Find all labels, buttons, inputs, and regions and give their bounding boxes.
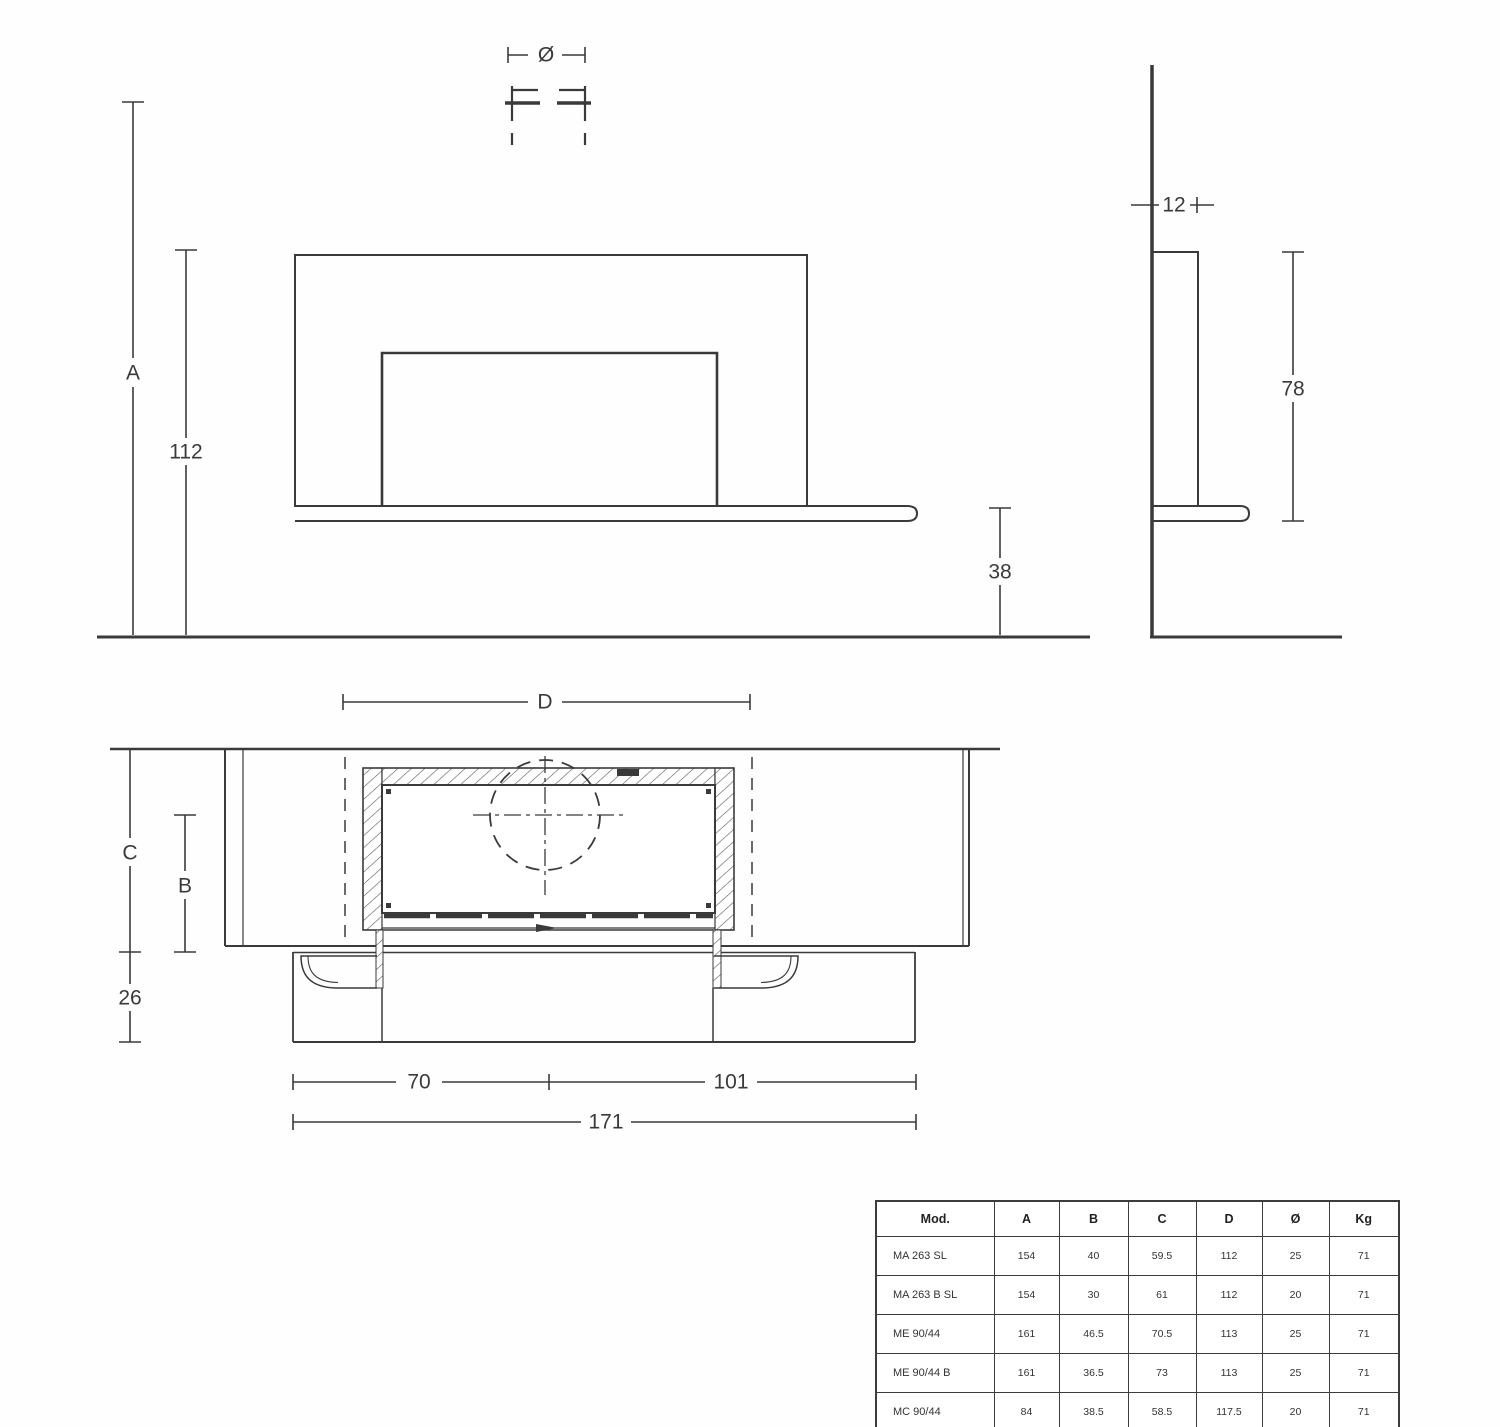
value-cell: 46.5 [1059,1315,1128,1354]
value-cell: 161 [994,1315,1059,1354]
table-row: MA 263 B SL15430611122071 [876,1276,1399,1315]
value-cell: 20 [1262,1276,1329,1315]
value-cell: 112 [1196,1276,1262,1315]
value-cell: 20 [1262,1393,1329,1427]
value-cell: 112 [1196,1237,1262,1276]
value-cell: 113 [1196,1315,1262,1354]
spec-table: Mod. A B C D Ø Kg MA 263 SL1544059.51122… [875,1200,1398,1427]
dim-label-101: 101 [713,1071,748,1094]
value-cell: 70.5 [1128,1315,1196,1354]
dim-c: C [115,749,145,952]
dim-label-112: 112 [169,441,202,464]
bench-slab-front [295,506,917,521]
col-header-c: C [1128,1201,1196,1237]
hood-front-outline [295,255,807,506]
model-cell: MC 90/44 [876,1393,994,1427]
dim-171: 171 [293,1109,916,1135]
side-view: 12 78 [1131,65,1342,637]
value-cell: 113 [1196,1354,1262,1393]
value-cell: 71 [1329,1315,1399,1354]
dim-label-78: 78 [1281,378,1304,401]
value-cell: 71 [1329,1354,1399,1393]
dim-38: 38 [982,508,1018,635]
value-cell: 71 [1329,1393,1399,1427]
plan-view: D [110,689,1000,1135]
dim-d: D [343,689,750,715]
firebox-front-outline [382,353,717,506]
firebox-plan [363,768,734,988]
value-cell: 117.5 [1196,1393,1262,1427]
value-cell: 58.5 [1128,1393,1196,1427]
table-row: MA 263 SL1544059.51122571 [876,1237,1399,1276]
value-cell: 36.5 [1059,1354,1128,1393]
dim-70-101: 70 101 [293,1069,916,1095]
col-header-d: D [1196,1201,1262,1237]
dim-label-12: 12 [1162,194,1185,217]
value-cell: 25 [1262,1237,1329,1276]
table-header-row: Mod. A B C D Ø Kg [876,1201,1399,1237]
value-cell: 84 [994,1393,1059,1427]
value-cell: 61 [1128,1276,1196,1315]
dim-label-26: 26 [118,987,141,1010]
dim-label-38: 38 [988,561,1011,584]
dim-b: B [170,815,200,952]
dim-12: 12 [1131,192,1214,218]
model-cell: ME 90/44 [876,1315,994,1354]
value-cell: 161 [994,1354,1059,1393]
value-cell: 154 [994,1237,1059,1276]
table-row: ME 90/4416146.570.51132571 [876,1315,1399,1354]
dim-label-b: B [178,875,192,898]
firebox-inner-outline [382,785,715,913]
hood-side-profile [1152,252,1198,506]
col-header-b: B [1059,1201,1128,1237]
value-cell: 71 [1329,1237,1399,1276]
technical-drawing-page: Ø A 112 38 [0,0,1500,1427]
col-header-mod: Mod. [876,1201,994,1237]
model-cell: ME 90/44 B [876,1354,994,1393]
dim-112: 112 [163,250,209,635]
dim-label-c: C [122,842,137,865]
model-cell: MA 263 SL [876,1237,994,1276]
value-cell: 30 [1059,1276,1128,1315]
value-cell: 25 [1262,1354,1329,1393]
value-cell: 59.5 [1128,1237,1196,1276]
dim-label-171: 171 [588,1111,623,1134]
model-cell: MA 263 B SL [876,1276,994,1315]
dim-diameter: Ø [508,42,585,68]
value-cell: 40 [1059,1237,1128,1276]
table-row: MC 90/448438.558.5117.52071 [876,1393,1399,1427]
table-row: ME 90/44 B16136.5731132571 [876,1354,1399,1393]
col-header-a: A [994,1201,1059,1237]
dim-label-diameter: Ø [538,44,554,67]
dim-26: 26 [110,952,150,1042]
front-view: Ø A 112 38 [97,42,1090,637]
value-cell: 38.5 [1059,1393,1128,1427]
value-cell: 73 [1128,1354,1196,1393]
value-cell: 154 [994,1276,1059,1315]
bench-slab-side [1152,506,1249,521]
col-header-diameter: Ø [1262,1201,1329,1237]
flue-pipe-icon [505,86,591,154]
dim-label-70: 70 [407,1071,430,1094]
bench-plan [293,952,915,1042]
col-header-kg: Kg [1329,1201,1399,1237]
dim-78: 78 [1274,252,1312,521]
spec-table-body: MA 263 SL1544059.51122571MA 263 B SL1543… [876,1237,1399,1427]
dim-label-d: D [537,691,552,714]
dim-a: A [118,102,148,635]
dim-label-a: A [126,362,140,385]
value-cell: 71 [1329,1276,1399,1315]
value-cell: 25 [1262,1315,1329,1354]
